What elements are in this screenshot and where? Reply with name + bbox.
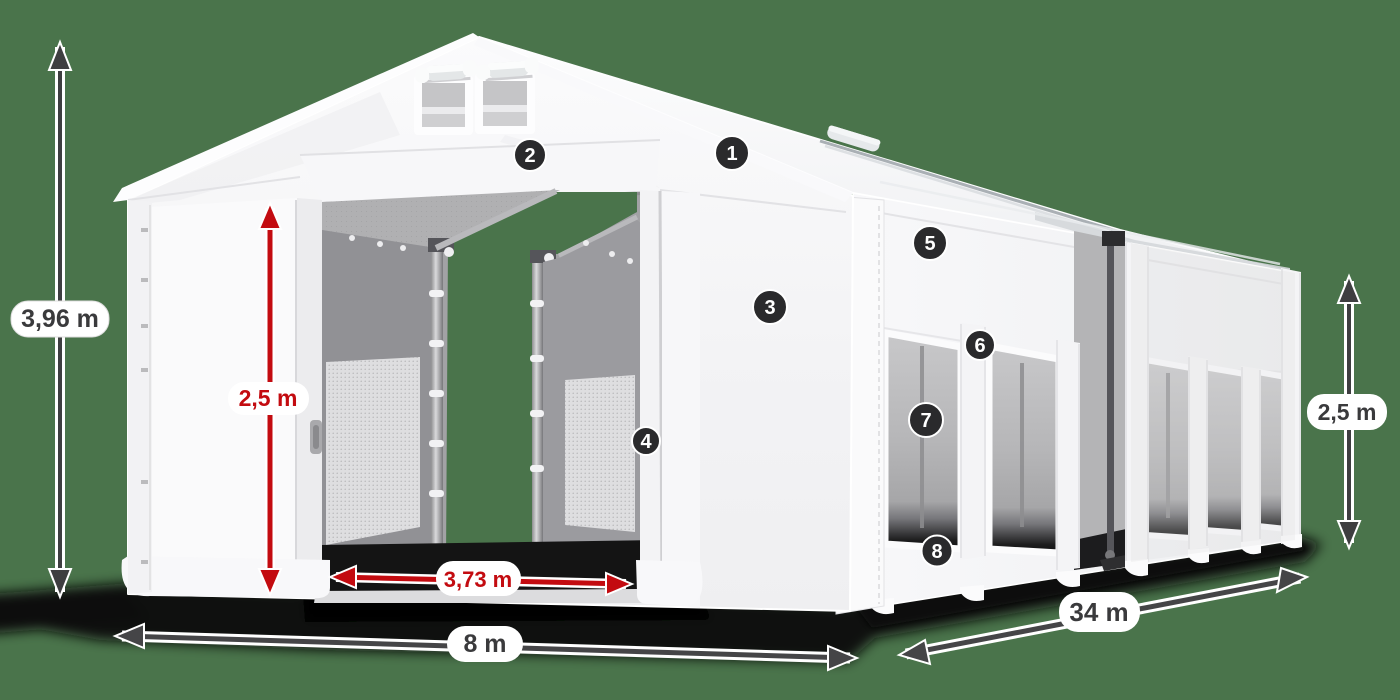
svg-text:3,73 m: 3,73 m bbox=[444, 567, 513, 592]
svg-text:7: 7 bbox=[920, 410, 931, 432]
svg-text:8 m: 8 m bbox=[463, 630, 506, 658]
svg-text:3,96 m: 3,96 m bbox=[21, 305, 99, 333]
svg-text:2,5 m: 2,5 m bbox=[1318, 399, 1377, 425]
svg-text:5: 5 bbox=[924, 233, 935, 255]
svg-text:6: 6 bbox=[974, 335, 985, 357]
svg-text:3: 3 bbox=[764, 297, 775, 319]
svg-text:8: 8 bbox=[931, 541, 942, 563]
svg-text:4: 4 bbox=[640, 431, 652, 453]
svg-text:2,5 m: 2,5 m bbox=[239, 385, 298, 411]
svg-text:1: 1 bbox=[726, 143, 737, 165]
svg-text:34 m: 34 m bbox=[1069, 597, 1128, 627]
svg-text:2: 2 bbox=[524, 145, 535, 167]
